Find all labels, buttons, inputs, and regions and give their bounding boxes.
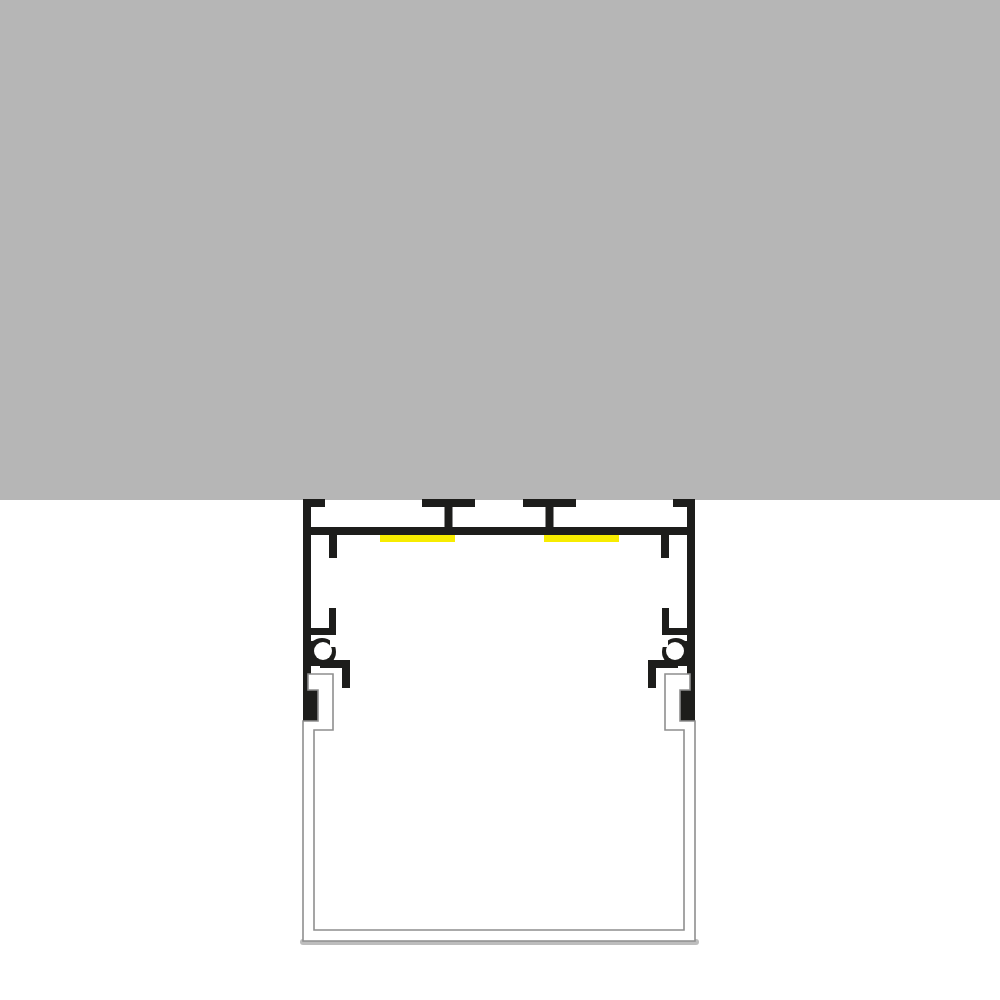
aluminium-profile (303, 499, 695, 721)
retainer-tab-right (661, 535, 669, 558)
screw-boss-opening-right (659, 639, 668, 647)
retainer-tab-left (329, 535, 337, 558)
screw-boss-opening-left (330, 639, 339, 647)
mounting-bracket-left (422, 499, 475, 527)
ceiling-surface (0, 0, 1000, 500)
slot-hook-right (662, 608, 687, 635)
mounting-bracket-right (523, 499, 576, 527)
cross-section-drawing (0, 0, 1000, 1000)
screw-hole-left (314, 642, 332, 660)
led-mounting-plate (303, 527, 695, 535)
led-strip-left (380, 535, 455, 542)
led-strip-right (544, 535, 619, 542)
led-strips (380, 535, 619, 542)
slot-hook-left (311, 608, 336, 635)
diffuser-cover (303, 674, 695, 941)
screw-hole-right (666, 642, 684, 660)
drawing-canvas (0, 0, 1000, 1000)
